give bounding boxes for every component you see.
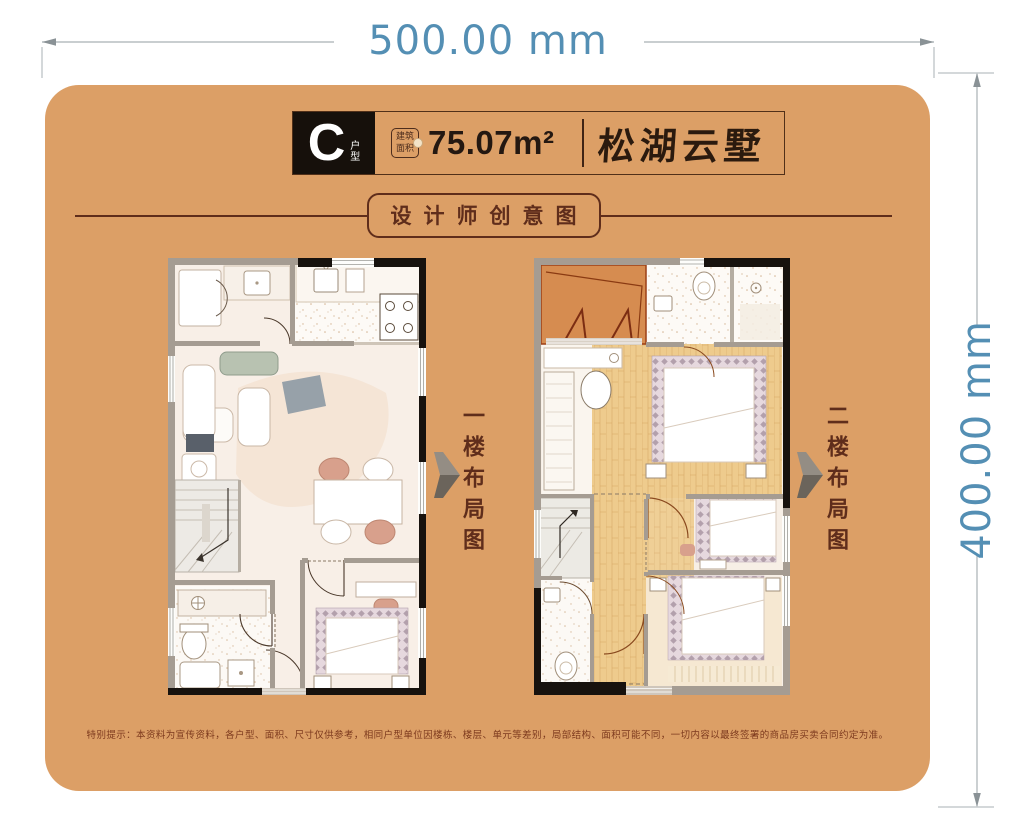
unit-type-box: C 户 型: [293, 112, 375, 174]
unit-letter: C: [308, 117, 346, 169]
subtitle-rule-left: [75, 215, 367, 217]
area-badge-line: 面积: [396, 143, 414, 153]
area-type-badge: 建筑 面积: [391, 128, 419, 157]
area-value: 75.07m²: [428, 124, 554, 162]
width-dimension-label: 500.00 mm: [368, 18, 608, 64]
subtitle-box: 设计师创意图: [367, 193, 601, 238]
unit-type-label: 户 型: [350, 141, 360, 164]
stairs: [175, 480, 239, 572]
header-divider: [582, 119, 584, 167]
floor-1-caption: 一楼布局图: [456, 404, 488, 559]
floor-plan-1-svg: [168, 258, 426, 695]
area-badge-line: 建筑: [396, 131, 414, 141]
header-strip: C 户 型 建筑 面积 75.07m² 松湖云墅: [292, 111, 785, 175]
brand-name: 松湖云墅: [597, 116, 787, 170]
subtitle-rule-right: [601, 215, 893, 217]
stairs2: [540, 498, 592, 578]
floor-plan-1: [168, 258, 426, 695]
badge-seal-dot: [413, 138, 423, 148]
floor-plan-2: [534, 258, 790, 695]
area-section: 建筑 面积 75.07m²: [375, 112, 568, 174]
floor-2-caption: 二楼布局图: [820, 404, 852, 559]
unit-type-char: 户: [350, 141, 360, 153]
disclaimer-text: 特别提示：本资料为宣传资料，各户型、面积、尺寸仅供参考，相同户型单位因楼栋、楼层…: [45, 727, 930, 741]
subtitle-row: 设计师创意图: [75, 193, 892, 238]
floorplan-poster-page: 500.00 mm 400.00 mm C 户 型 建筑 面积 75.07m² …: [0, 0, 1025, 828]
unit-type-char: 型: [350, 152, 360, 164]
height-dimension-label: 400.00 mm: [954, 320, 1000, 560]
terrace: [541, 265, 646, 345]
bottom-bedroom: [650, 576, 780, 682]
floor-plan-2-svg: [534, 258, 790, 695]
